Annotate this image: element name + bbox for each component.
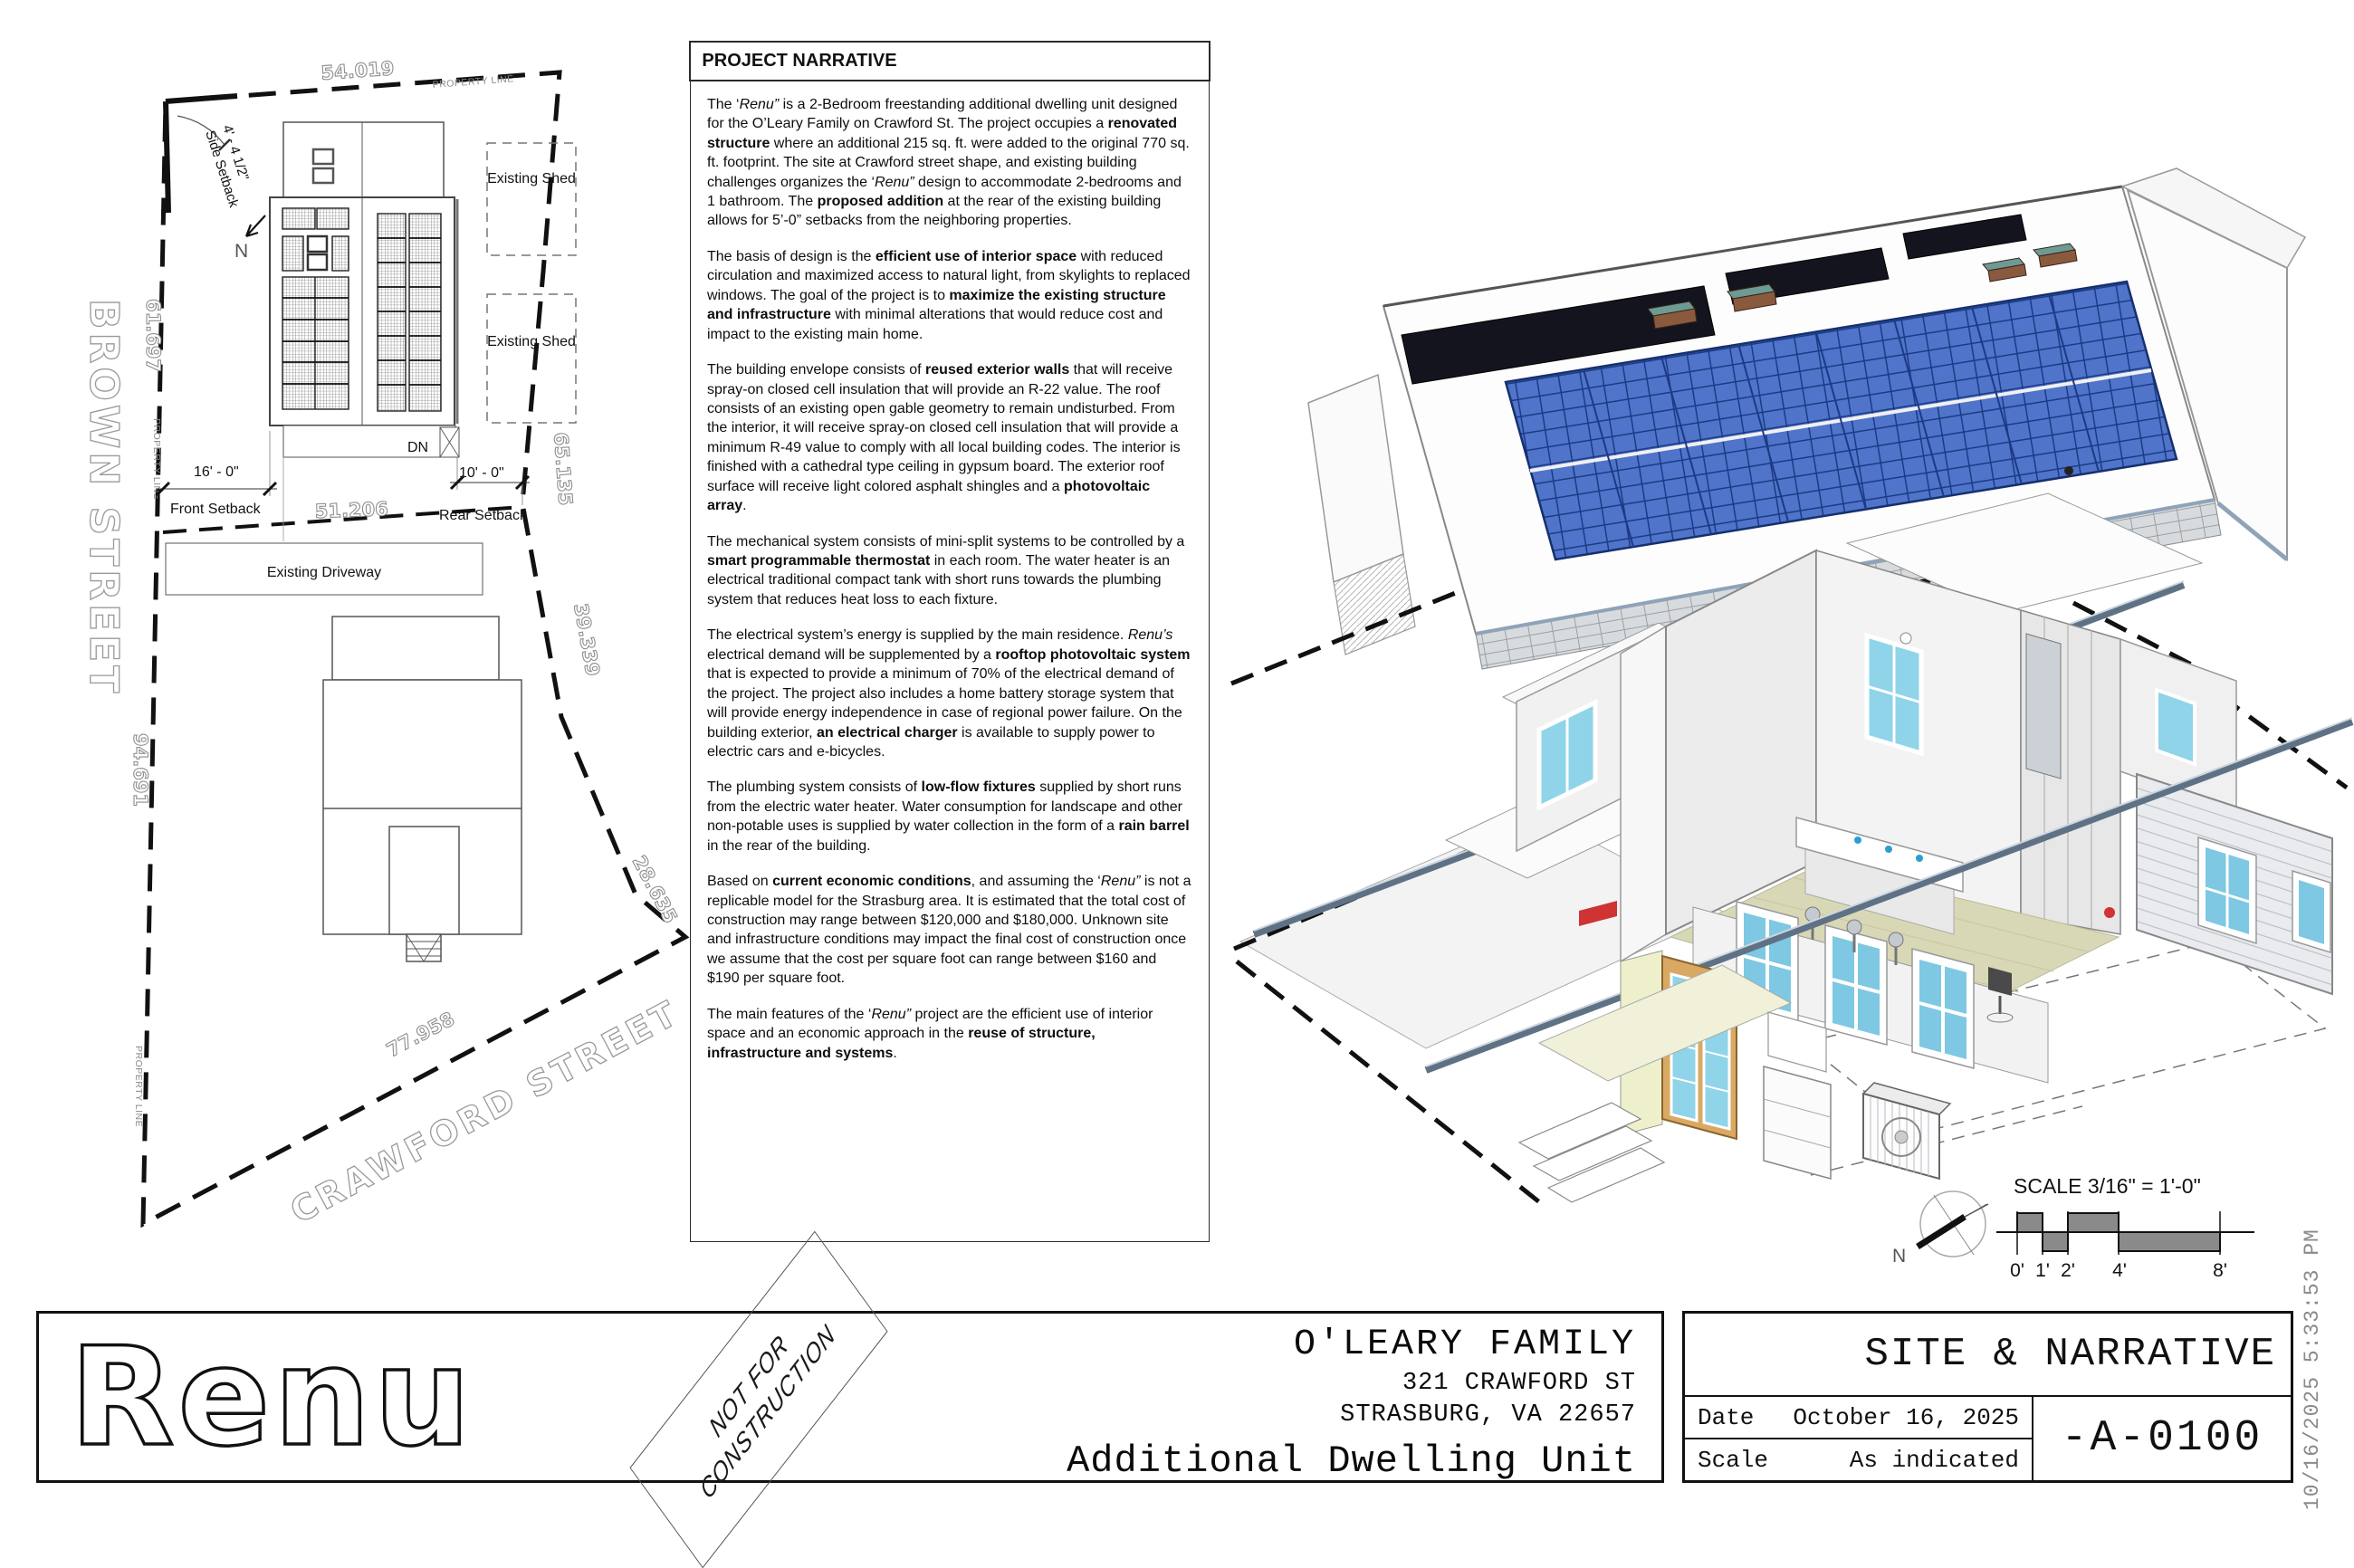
street-name-brown: BROWN STREET (81, 299, 127, 696)
narrative-title: PROJECT NARRATIVE (689, 41, 1210, 81)
property-line-label-southwest: PROPERTY LINE (133, 1046, 144, 1127)
refrigerator (2026, 634, 2061, 779)
existing-driveway: Existing Driveway (166, 543, 483, 595)
rear-setback-label: Rear Setback (439, 508, 528, 523)
scale-text: SCALE 3/16" = 1'-0" (2014, 1174, 2201, 1198)
narrative-paragraph: The electrical system’s energy is suppli… (707, 626, 1192, 761)
sheet-number: -A-0100 (2033, 1397, 2291, 1480)
front-setback-dimension: 16' - 0" Front Setback (156, 431, 277, 517)
roof-left-gable-wall (1308, 375, 1403, 582)
scale-bar: 0' 1' 2' 4' 8' (1996, 1211, 2254, 1281)
client-info: O'LEARY FAMILY 321 CRAWFORD ST STRASBURG… (1067, 1324, 1636, 1483)
scale-row: Scale As indicated (1685, 1439, 2032, 1480)
dn-label: DN (407, 440, 428, 455)
client-address-2: STRASBURG, VA 22657 (1067, 1401, 1636, 1429)
shed-label-1: Existing Shed (486, 170, 577, 189)
front-setback-dim: 16' - 0" (194, 464, 239, 480)
red-accent (2104, 907, 2115, 918)
scale-tick: 4' (2112, 1260, 2127, 1281)
skylight (308, 254, 327, 270)
project-narrative-panel: PROJECT NARRATIVE The ‘Renu” is a 2-Bedr… (690, 42, 1210, 1242)
narrative-paragraph: Based on current economic conditions, an… (707, 872, 1192, 989)
scale-tick: 0' (2010, 1260, 2024, 1281)
renu-logo: Renu (62, 1315, 533, 1480)
front-setback-label: Front Setback (170, 502, 262, 517)
skylight (308, 236, 327, 252)
dim-east-mid: 39.339 (569, 602, 604, 678)
plot-timestamp: 10/16/2025 5:33:53 PM (2301, 1229, 2324, 1510)
narrative-paragraph: The mechanical system consists of mini-s… (707, 532, 1192, 610)
narrative-paragraphs: The ‘Renu” is a 2-Bedroom freestanding a… (691, 81, 1209, 1063)
minisplit-condenser (1863, 1083, 1950, 1179)
narrative-paragraph: The main features of the ‘Renu” project … (707, 1005, 1192, 1063)
dim-north: 54.019 (321, 57, 396, 84)
scale-tick: 8' (2213, 1260, 2227, 1281)
dim-west-upper: 61.697 (142, 299, 164, 372)
scale-tick: 2' (2061, 1260, 2075, 1281)
property-line-label-north: PROPERTY LINE (432, 73, 514, 91)
dim-interior: 51.206 (314, 498, 388, 522)
narrative-paragraph: The plumbing system consists of low-flow… (707, 778, 1192, 856)
scale-indicator: SCALE 3/16" = 1'-0" N 0' 1' 2' 4' 8' (1892, 1174, 2254, 1281)
north-arrow: N (234, 215, 265, 262)
property-line-label-west: PROPERTY LINE (151, 418, 162, 500)
project-title: Additional Dwelling Unit (1067, 1439, 1636, 1483)
dim-south: 77.958 (383, 1008, 458, 1061)
date-value: October 16, 2025 (1793, 1404, 2019, 1431)
sheet-title: SITE & NARRATIVE (1685, 1314, 2291, 1397)
narrative-paragraph: The basis of design is the efficient use… (707, 247, 1192, 344)
cabinet-stack (1764, 1012, 1831, 1179)
site-plan: 54.019 61.697 94.691 65.135 39.339 28.63… (81, 57, 686, 1231)
compass-north-label: N (1892, 1246, 1906, 1267)
date-scale-table: Date October 16, 2025 Scale As indicated (1685, 1397, 2033, 1480)
narrative-paragraph: The building envelope consists of reused… (707, 360, 1192, 516)
dim-east-lower: 28.635 (628, 852, 682, 927)
street-name-crawford: CRAWFORD STREET (284, 992, 686, 1231)
north-arrow-label: N (234, 241, 248, 262)
driveway-label: Existing Driveway (267, 565, 381, 580)
ceiling-light (1900, 633, 1911, 644)
adu-building-plan: DN (270, 122, 459, 541)
scale-label: Scale (1698, 1447, 1768, 1474)
dim-west-lower: 94.691 (129, 733, 151, 807)
client-name: O'LEARY FAMILY (1067, 1324, 1636, 1365)
main-house-plan (323, 617, 522, 961)
compass: N (1892, 1191, 1988, 1267)
dim-east-upper: 65.135 (550, 432, 577, 507)
date-row: Date October 16, 2025 (1685, 1397, 2032, 1439)
window (2157, 690, 2195, 764)
roof-vent-dot (2064, 466, 2073, 475)
client-address-1: 321 CRAWFORD ST (1067, 1370, 1636, 1397)
tall-wall-side (1621, 626, 1666, 961)
shed-label-2: Existing Shed (486, 333, 577, 352)
scale-value: As indicated (1850, 1447, 2019, 1474)
title-block-right: SITE & NARRATIVE Date October 16, 2025 S… (1682, 1311, 2293, 1483)
rear-setback-dim: 10' - 0" (459, 465, 504, 481)
window-glass (2299, 880, 2324, 944)
renu-logo-text: Renu (70, 1319, 474, 1477)
existing-shed-1 (487, 143, 576, 255)
date-label: Date (1698, 1404, 1754, 1431)
scale-tick: 1' (2035, 1260, 2050, 1281)
narrative-paragraph: The ‘Renu” is a 2-Bedroom freestanding a… (707, 95, 1192, 231)
